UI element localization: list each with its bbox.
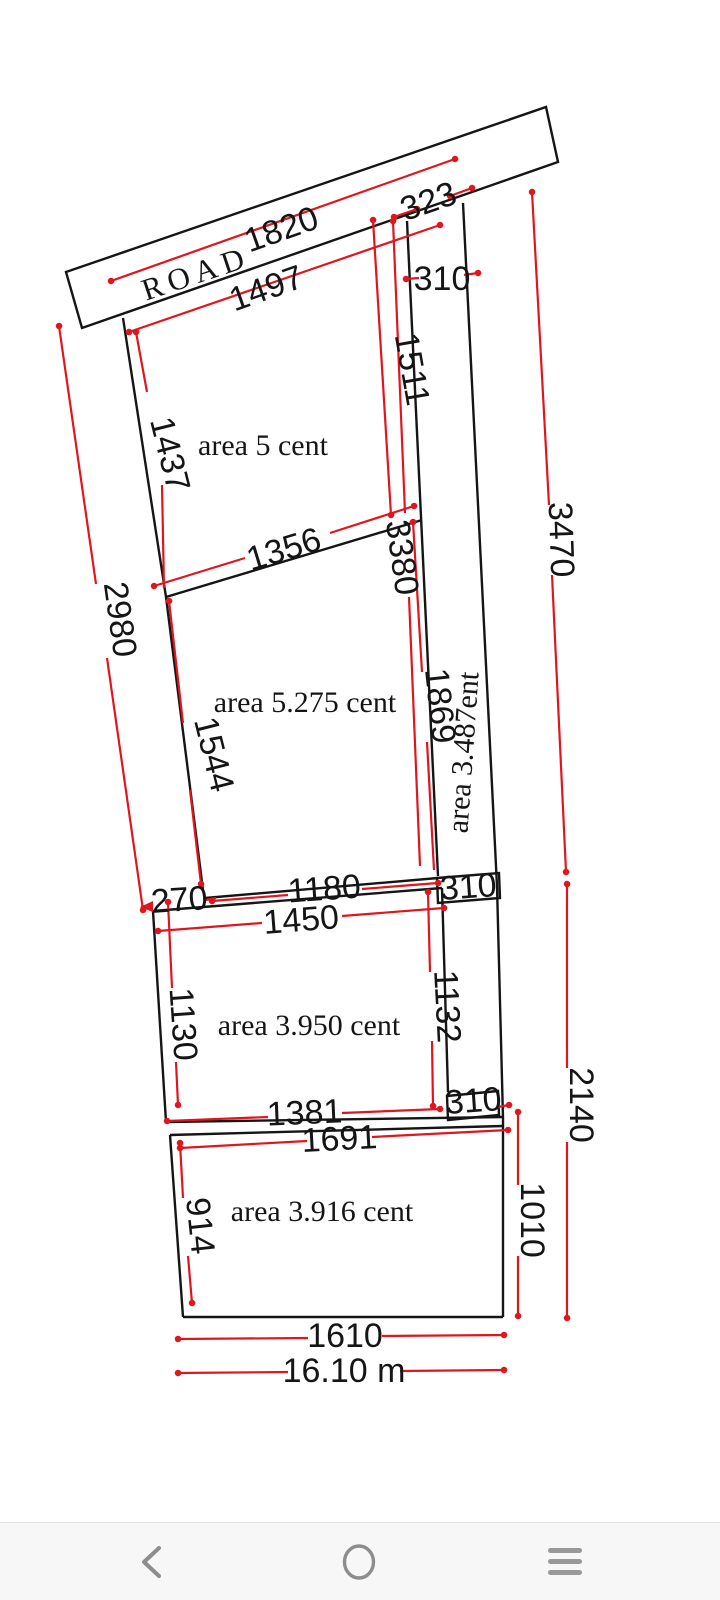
dim-1010: 1010 — [513, 1182, 551, 1258]
dim-3380: 3380 — [378, 517, 426, 597]
plot-c-area-label: area 3.950 cent — [218, 1009, 401, 1042]
dim-16-10-m: 16.10 m — [283, 1352, 406, 1390]
phone-screen: ROAD 1820 1497 323 310 1511 1437 2980 34… — [0, 0, 720, 1600]
dim-310-mid: 310 — [439, 866, 498, 908]
dim-1511: 1511 — [387, 330, 437, 409]
dim-310-low: 310 — [444, 1080, 503, 1122]
home-circle-icon — [340, 1542, 378, 1582]
dim-1132: 1132 — [426, 969, 468, 1044]
dim-1450: 1450 — [262, 898, 340, 942]
nav-home-button[interactable] — [329, 1532, 389, 1592]
dim-1544: 1544 — [186, 713, 241, 796]
dim-1356: 1356 — [242, 520, 325, 578]
back-chevron-icon — [138, 1545, 164, 1579]
dim-1130: 1130 — [161, 986, 204, 1062]
labels: ROAD 1820 1497 323 310 1511 1437 2980 34… — [96, 174, 600, 1390]
menu-hamburger-icon — [546, 1546, 584, 1578]
dim-270: 270 — [150, 879, 209, 921]
nav-menu-button[interactable] — [535, 1532, 595, 1592]
dim-1691: 1691 — [301, 1118, 379, 1160]
dim-1610: 1610 — [307, 1317, 383, 1355]
dim-1437: 1437 — [142, 413, 197, 496]
android-navigation-bar — [0, 1522, 720, 1600]
dim-3470: 3470 — [541, 501, 582, 578]
dim-2980: 2980 — [96, 579, 144, 659]
dim-914: 914 — [178, 1196, 222, 1256]
dim-2140: 2140 — [562, 1067, 600, 1143]
plot-d-area-label: area 3.916 cent — [231, 1195, 414, 1228]
plot-a-area-label: area 5 cent — [198, 429, 329, 462]
nav-back-button[interactable] — [121, 1532, 181, 1592]
dim-line-1511 — [373, 220, 391, 515]
plot-b-area-label: area 5.275 cent — [214, 686, 397, 719]
dim-310-top: 310 — [414, 260, 471, 298]
survey-diagram: ROAD 1820 1497 323 310 1511 1437 2980 34… — [0, 0, 720, 1600]
dim-323: 323 — [395, 174, 461, 228]
